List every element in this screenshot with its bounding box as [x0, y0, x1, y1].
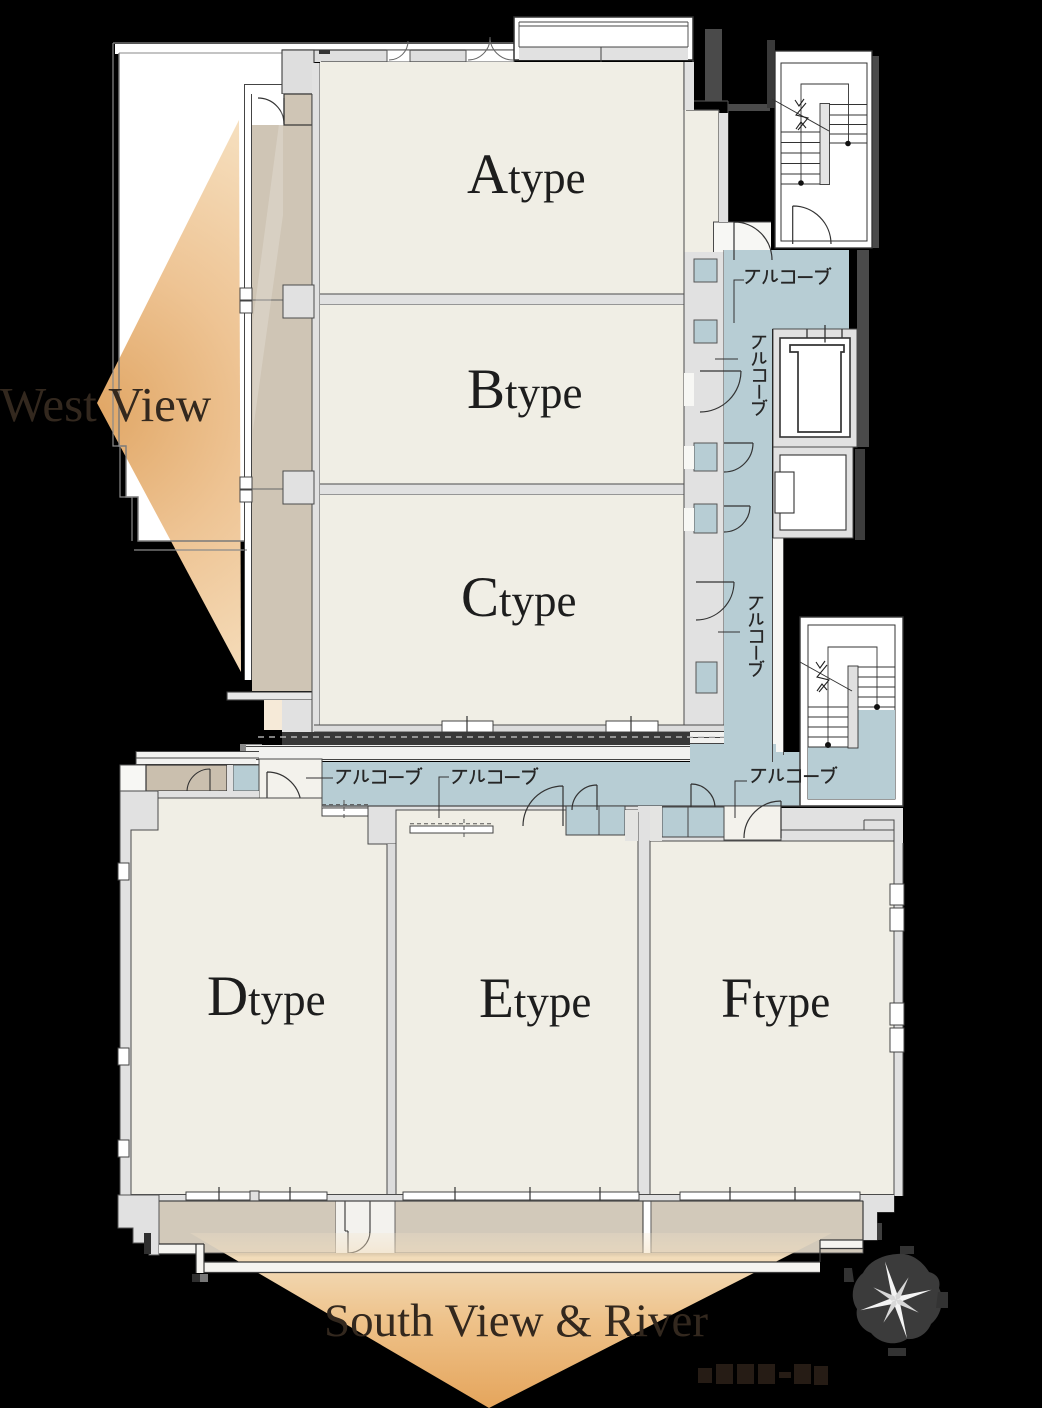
svg-text:Atype: Atype: [467, 143, 586, 206]
svg-text:South View & River: South View & River: [324, 1295, 708, 1347]
svg-text:West View: West View: [0, 377, 212, 432]
svg-text:Ftype: Ftype: [721, 967, 830, 1030]
svg-text:Dtype: Dtype: [207, 965, 326, 1028]
svg-text:Btype: Btype: [467, 358, 583, 421]
svg-text:Etype: Etype: [479, 967, 591, 1030]
svg-text:Ctype: Ctype: [461, 566, 577, 629]
